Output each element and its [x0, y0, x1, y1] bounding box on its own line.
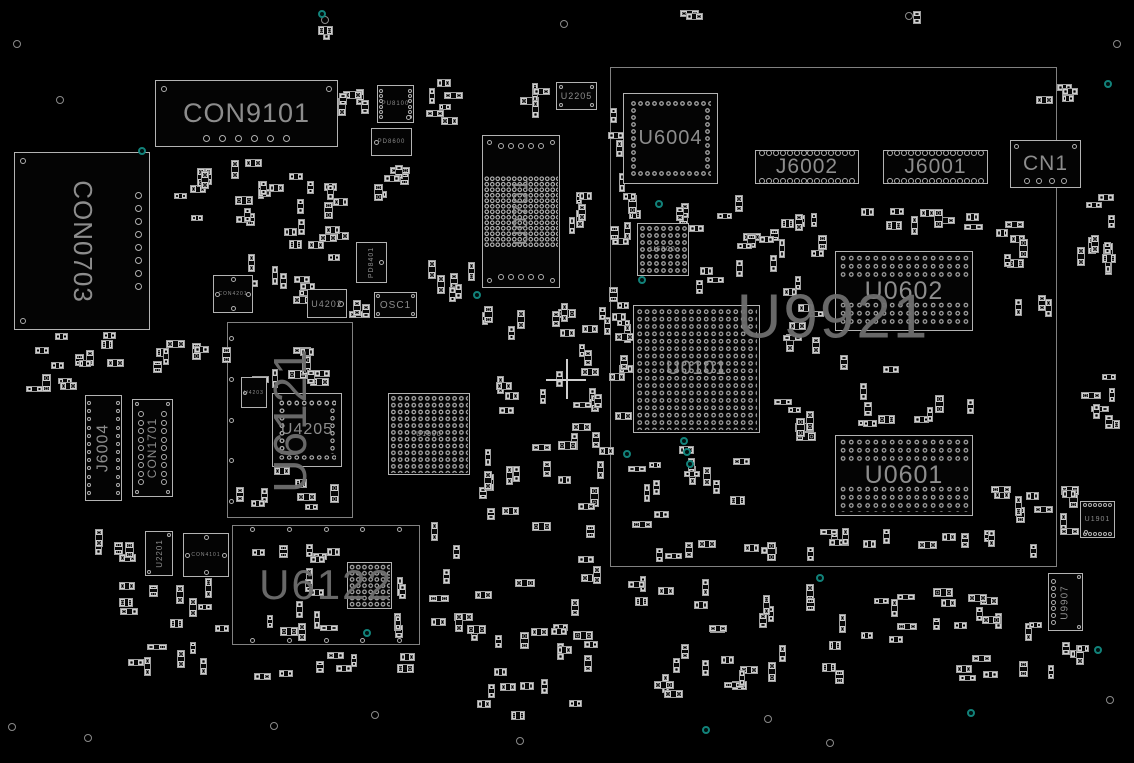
passive-component[interactable] — [515, 579, 535, 586]
passive-component[interactable] — [781, 219, 793, 228]
passive-component[interactable] — [818, 235, 827, 250]
test-point[interactable] — [680, 437, 688, 445]
passive-component[interactable] — [861, 632, 873, 639]
passive-component[interactable] — [759, 613, 767, 629]
passive-component[interactable] — [972, 655, 990, 662]
passive-component[interactable] — [584, 350, 593, 366]
passive-component[interactable] — [520, 682, 534, 691]
passive-component[interactable] — [295, 479, 308, 487]
passive-component[interactable] — [426, 110, 443, 117]
passive-component[interactable] — [581, 368, 600, 376]
passive-component[interactable] — [632, 521, 652, 529]
passive-component[interactable] — [384, 175, 401, 182]
passive-component[interactable] — [783, 335, 801, 341]
passive-component[interactable] — [996, 229, 1008, 237]
passive-component[interactable] — [809, 311, 824, 317]
passive-component[interactable] — [599, 307, 605, 320]
passive-component[interactable] — [649, 462, 662, 468]
passive-component[interactable] — [513, 466, 520, 482]
passive-component[interactable] — [730, 496, 745, 505]
passive-component[interactable] — [891, 599, 899, 617]
passive-component[interactable] — [1062, 490, 1076, 498]
passive-component[interactable] — [593, 566, 602, 584]
passive-component[interactable] — [812, 337, 820, 354]
passive-component[interactable] — [558, 441, 576, 449]
passive-component[interactable] — [897, 594, 915, 601]
passive-component[interactable] — [610, 226, 619, 240]
passive-component[interactable] — [961, 533, 968, 548]
passive-component[interactable] — [959, 675, 976, 681]
passive-component[interactable] — [330, 484, 339, 503]
passive-component[interactable] — [737, 243, 752, 249]
passive-component[interactable] — [260, 181, 267, 195]
passive-component[interactable] — [114, 542, 123, 554]
passive-component[interactable] — [927, 407, 933, 422]
passive-component[interactable] — [807, 547, 814, 562]
passive-component[interactable] — [592, 432, 600, 448]
passive-component[interactable] — [279, 670, 293, 676]
passive-component[interactable] — [558, 476, 571, 484]
passive-component[interactable] — [968, 594, 987, 602]
passive-component[interactable] — [1029, 622, 1042, 628]
passive-component[interactable] — [635, 597, 648, 606]
passive-component[interactable] — [759, 236, 774, 243]
passive-component[interactable] — [289, 240, 303, 249]
passive-component[interactable] — [1086, 202, 1102, 208]
passive-component[interactable] — [694, 601, 707, 610]
passive-component[interactable] — [310, 556, 325, 563]
passive-component[interactable] — [533, 88, 550, 95]
passive-component[interactable] — [1102, 374, 1117, 381]
passive-component[interactable] — [673, 658, 680, 673]
passive-component[interactable] — [484, 471, 491, 490]
passive-component[interactable] — [328, 254, 340, 260]
passive-component[interactable] — [201, 171, 209, 189]
passive-component[interactable] — [431, 618, 446, 626]
passive-component[interactable] — [244, 208, 251, 222]
passive-component[interactable] — [811, 250, 824, 257]
passive-component[interactable] — [744, 544, 759, 552]
component-cn1[interactable] — [1010, 140, 1081, 188]
passive-component[interactable] — [399, 584, 406, 599]
passive-component[interactable] — [569, 700, 582, 707]
passive-component[interactable] — [103, 332, 116, 338]
passive-component[interactable] — [296, 601, 303, 618]
passive-component[interactable] — [35, 347, 49, 354]
passive-component[interactable] — [308, 241, 324, 249]
passive-component[interactable] — [119, 582, 135, 590]
passive-component[interactable] — [532, 444, 551, 451]
passive-component[interactable] — [736, 260, 743, 278]
passive-component[interactable] — [612, 313, 626, 321]
passive-component[interactable] — [252, 549, 265, 556]
passive-component[interactable] — [511, 711, 525, 719]
passive-component[interactable] — [505, 392, 519, 400]
passive-component[interactable] — [795, 276, 801, 290]
test-point[interactable] — [363, 629, 371, 637]
passive-component[interactable] — [468, 262, 475, 281]
passive-component[interactable] — [934, 209, 942, 228]
passive-component[interactable] — [279, 545, 288, 558]
pcb-board[interactable]: U9921U6121U6122CON9101CON0703PU8100PD860… — [0, 0, 1134, 763]
passive-component[interactable] — [272, 369, 278, 387]
passive-component[interactable] — [176, 585, 184, 605]
passive-component[interactable] — [1108, 215, 1115, 228]
passive-component[interactable] — [551, 628, 566, 635]
passive-component[interactable] — [983, 671, 999, 677]
passive-component[interactable] — [267, 615, 273, 628]
passive-component[interactable] — [615, 412, 632, 420]
passive-component[interactable] — [248, 254, 256, 272]
passive-component[interactable] — [560, 329, 575, 337]
passive-component[interactable] — [653, 480, 660, 495]
passive-component[interactable] — [119, 598, 133, 606]
test-point[interactable] — [623, 450, 631, 458]
passive-component[interactable] — [191, 215, 203, 221]
passive-component[interactable] — [484, 306, 493, 324]
passive-component[interactable] — [395, 616, 401, 630]
passive-component[interactable] — [351, 654, 357, 667]
passive-component[interactable] — [689, 225, 704, 232]
passive-component[interactable] — [194, 346, 209, 353]
passive-component[interactable] — [956, 665, 973, 672]
passive-component[interactable] — [198, 604, 212, 610]
passive-component[interactable] — [280, 273, 287, 289]
passive-component[interactable] — [861, 208, 873, 216]
passive-component[interactable] — [789, 322, 806, 330]
passive-component[interactable] — [508, 326, 515, 340]
passive-component[interactable] — [189, 598, 196, 616]
test-point[interactable] — [138, 147, 146, 155]
passive-component[interactable] — [26, 386, 43, 393]
passive-component[interactable] — [307, 370, 315, 384]
passive-component[interactable] — [702, 579, 709, 596]
passive-component[interactable] — [717, 213, 732, 219]
passive-component[interactable] — [200, 658, 207, 674]
passive-component[interactable] — [696, 280, 702, 294]
passive-component[interactable] — [918, 541, 936, 549]
passive-component[interactable] — [842, 528, 848, 545]
passive-component[interactable] — [609, 373, 625, 381]
passive-component[interactable] — [166, 340, 185, 349]
passive-component[interactable] — [190, 642, 197, 654]
passive-component[interactable] — [820, 529, 838, 535]
passive-component[interactable] — [911, 216, 917, 235]
passive-component[interactable] — [796, 418, 805, 436]
passive-component[interactable] — [455, 284, 462, 300]
passive-component[interactable] — [1019, 661, 1028, 677]
passive-component[interactable] — [431, 522, 438, 541]
passive-component[interactable] — [1015, 496, 1023, 516]
passive-component[interactable] — [272, 266, 278, 286]
passive-component[interactable] — [1077, 645, 1089, 652]
passive-component[interactable] — [779, 239, 786, 258]
passive-component[interactable] — [935, 395, 944, 413]
passive-component[interactable] — [863, 540, 875, 547]
passive-component[interactable] — [532, 100, 539, 118]
passive-component[interactable] — [561, 303, 568, 322]
passive-component[interactable] — [616, 140, 623, 157]
passive-component[interactable] — [874, 598, 889, 604]
passive-component[interactable] — [307, 181, 314, 195]
passive-component[interactable] — [1093, 404, 1100, 419]
passive-component[interactable] — [774, 399, 792, 405]
passive-component[interactable] — [353, 300, 361, 317]
passive-component[interactable] — [1030, 544, 1037, 558]
passive-component[interactable] — [620, 355, 628, 371]
passive-component[interactable] — [298, 219, 304, 235]
passive-component[interactable] — [1048, 665, 1054, 678]
passive-component[interactable] — [374, 184, 383, 201]
passive-component[interactable] — [829, 641, 842, 650]
passive-component[interactable] — [1060, 528, 1078, 535]
passive-component[interactable] — [658, 587, 674, 594]
passive-component[interactable] — [499, 407, 514, 414]
passive-component[interactable] — [920, 209, 935, 217]
test-point[interactable] — [473, 291, 481, 299]
passive-component[interactable] — [153, 361, 162, 373]
passive-component[interactable] — [883, 366, 899, 372]
passive-component[interactable] — [520, 632, 528, 649]
passive-component[interactable] — [582, 325, 598, 332]
passive-component[interactable] — [316, 661, 324, 673]
passive-component[interactable] — [798, 304, 813, 311]
passive-component[interactable] — [628, 466, 646, 472]
passive-component[interactable] — [107, 359, 124, 367]
passive-component[interactable] — [770, 255, 776, 272]
passive-component[interactable] — [429, 595, 448, 602]
passive-component[interactable] — [532, 522, 551, 530]
component-con9101[interactable] — [155, 80, 338, 147]
passive-component[interactable] — [569, 217, 575, 234]
passive-component[interactable] — [318, 26, 332, 35]
passive-component[interactable] — [954, 622, 967, 630]
passive-component[interactable] — [453, 545, 459, 558]
passive-component[interactable] — [578, 204, 587, 221]
passive-component[interactable] — [314, 370, 330, 377]
passive-component[interactable] — [768, 662, 777, 682]
passive-component[interactable] — [467, 625, 486, 634]
test-point[interactable] — [1104, 80, 1112, 88]
passive-component[interactable] — [806, 411, 814, 431]
component-con0703[interactable] — [14, 152, 150, 330]
passive-component[interactable] — [1098, 194, 1114, 201]
test-point[interactable] — [702, 726, 710, 734]
passive-component[interactable] — [552, 311, 559, 327]
passive-component[interactable] — [222, 347, 230, 363]
passive-component[interactable] — [615, 333, 634, 342]
passive-component[interactable] — [941, 599, 956, 608]
passive-component[interactable] — [713, 480, 720, 494]
passive-component[interactable] — [579, 192, 593, 200]
passive-component[interactable] — [177, 650, 185, 668]
passive-component[interactable] — [495, 635, 502, 648]
passive-component[interactable] — [289, 173, 304, 179]
passive-component[interactable] — [517, 310, 526, 329]
passive-component[interactable] — [735, 195, 742, 212]
passive-component[interactable] — [572, 423, 591, 431]
passive-component[interactable] — [400, 653, 415, 661]
passive-component[interactable] — [897, 623, 917, 630]
passive-component[interactable] — [597, 461, 604, 479]
test-point[interactable] — [816, 574, 824, 582]
passive-component[interactable] — [305, 504, 318, 510]
passive-component[interactable] — [236, 487, 244, 502]
passive-component[interactable] — [571, 599, 579, 615]
passive-component[interactable] — [707, 277, 724, 284]
passive-component[interactable] — [274, 467, 290, 475]
passive-component[interactable] — [437, 275, 445, 295]
passive-component[interactable] — [443, 569, 450, 584]
passive-component[interactable] — [475, 591, 491, 599]
passive-component[interactable] — [251, 500, 265, 507]
passive-component[interactable] — [254, 673, 271, 680]
passive-component[interactable] — [966, 213, 980, 222]
passive-component[interactable] — [967, 399, 974, 414]
passive-component[interactable] — [878, 415, 894, 423]
passive-component[interactable] — [1091, 235, 1099, 254]
passive-component[interactable] — [51, 362, 65, 369]
passive-component[interactable] — [1104, 242, 1111, 254]
passive-component[interactable] — [681, 644, 689, 659]
passive-component[interactable] — [1109, 388, 1115, 402]
passive-component[interactable] — [685, 542, 693, 558]
passive-component[interactable] — [429, 88, 436, 104]
passive-component[interactable] — [541, 679, 548, 694]
passive-component[interactable] — [444, 92, 463, 99]
passive-component[interactable] — [991, 486, 1011, 493]
passive-component[interactable] — [125, 542, 134, 558]
passive-component[interactable] — [437, 79, 450, 87]
passive-component[interactable] — [721, 656, 734, 664]
passive-component[interactable] — [733, 458, 750, 465]
passive-component[interactable] — [709, 625, 727, 632]
passive-component[interactable] — [654, 511, 669, 518]
passive-component[interactable] — [763, 595, 770, 615]
passive-component[interactable] — [120, 608, 138, 615]
passive-component[interactable] — [327, 548, 339, 556]
passive-component[interactable] — [628, 581, 646, 589]
passive-component[interactable] — [144, 657, 151, 676]
passive-component[interactable] — [654, 681, 673, 690]
passive-component[interactable] — [205, 578, 212, 598]
passive-component[interactable] — [280, 627, 297, 636]
passive-component[interactable] — [822, 663, 836, 671]
passive-component[interactable] — [686, 13, 703, 20]
passive-component[interactable] — [933, 588, 953, 597]
passive-component[interactable] — [700, 267, 713, 276]
passive-component[interactable] — [656, 548, 663, 561]
passive-component[interactable] — [235, 196, 253, 205]
passive-component[interactable] — [586, 525, 595, 538]
passive-component[interactable] — [128, 659, 144, 666]
passive-component[interactable] — [860, 383, 867, 401]
passive-component[interactable] — [664, 690, 683, 698]
passive-component[interactable] — [300, 348, 314, 356]
passive-component[interactable] — [982, 616, 1001, 624]
passive-component[interactable] — [79, 360, 91, 368]
passive-component[interactable] — [864, 402, 872, 416]
passive-component[interactable] — [578, 556, 594, 563]
passive-component[interactable] — [608, 132, 624, 139]
passive-component[interactable] — [684, 471, 700, 477]
passive-component[interactable] — [297, 199, 304, 214]
passive-component[interactable] — [325, 226, 340, 234]
passive-component[interactable] — [1077, 247, 1084, 266]
test-point[interactable] — [318, 10, 326, 18]
passive-component[interactable] — [988, 530, 994, 547]
passive-component[interactable] — [698, 540, 717, 548]
passive-component[interactable] — [336, 665, 352, 671]
passive-component[interactable] — [147, 644, 167, 650]
passive-component[interactable] — [543, 461, 551, 477]
passive-component[interactable] — [788, 407, 802, 413]
passive-component[interactable] — [477, 700, 491, 708]
passive-component[interactable] — [361, 100, 369, 114]
passive-component[interactable] — [1102, 254, 1116, 263]
passive-component[interactable] — [890, 208, 904, 215]
passive-component[interactable] — [767, 542, 776, 561]
passive-component[interactable] — [1019, 239, 1028, 257]
passive-component[interactable] — [284, 228, 297, 237]
passive-component[interactable] — [269, 184, 284, 192]
passive-component[interactable] — [913, 11, 921, 25]
passive-component[interactable] — [573, 402, 592, 408]
passive-component[interactable] — [485, 449, 492, 466]
passive-component[interactable] — [494, 668, 508, 675]
passive-component[interactable] — [60, 382, 77, 390]
passive-component[interactable] — [298, 623, 307, 640]
passive-component[interactable] — [1038, 295, 1046, 311]
passive-component[interactable] — [811, 213, 817, 227]
passive-component[interactable] — [487, 508, 495, 520]
passive-component[interactable] — [1004, 254, 1011, 267]
passive-component[interactable] — [101, 340, 113, 349]
test-point[interactable] — [686, 460, 694, 468]
passive-component[interactable] — [333, 198, 348, 206]
passive-component[interactable] — [594, 394, 602, 408]
passive-component[interactable] — [863, 420, 877, 427]
passive-component[interactable] — [839, 614, 846, 634]
passive-component[interactable] — [1062, 642, 1070, 655]
passive-component[interactable] — [703, 467, 711, 486]
passive-component[interactable] — [540, 389, 546, 405]
passive-component[interactable] — [599, 447, 614, 455]
passive-component[interactable] — [557, 646, 572, 653]
passive-component[interactable] — [840, 355, 848, 370]
passive-component[interactable] — [95, 529, 104, 547]
passive-component[interactable] — [676, 207, 684, 221]
passive-component[interactable] — [584, 655, 591, 673]
passive-component[interactable] — [320, 625, 338, 631]
passive-component[interactable] — [531, 628, 548, 635]
passive-component[interactable] — [362, 304, 370, 318]
passive-component[interactable] — [309, 589, 324, 596]
passive-component[interactable] — [1062, 95, 1074, 103]
passive-component[interactable] — [883, 529, 890, 545]
passive-component[interactable] — [609, 287, 617, 303]
passive-component[interactable] — [55, 333, 67, 339]
passive-component[interactable] — [502, 507, 519, 515]
passive-component[interactable] — [488, 684, 494, 698]
test-point[interactable] — [1094, 646, 1102, 654]
passive-component[interactable] — [1034, 506, 1054, 513]
passive-component[interactable] — [623, 193, 635, 199]
passive-component[interactable] — [739, 670, 745, 686]
passive-component[interactable] — [665, 553, 682, 559]
passive-component[interactable] — [231, 160, 239, 179]
passive-component[interactable] — [889, 636, 904, 643]
